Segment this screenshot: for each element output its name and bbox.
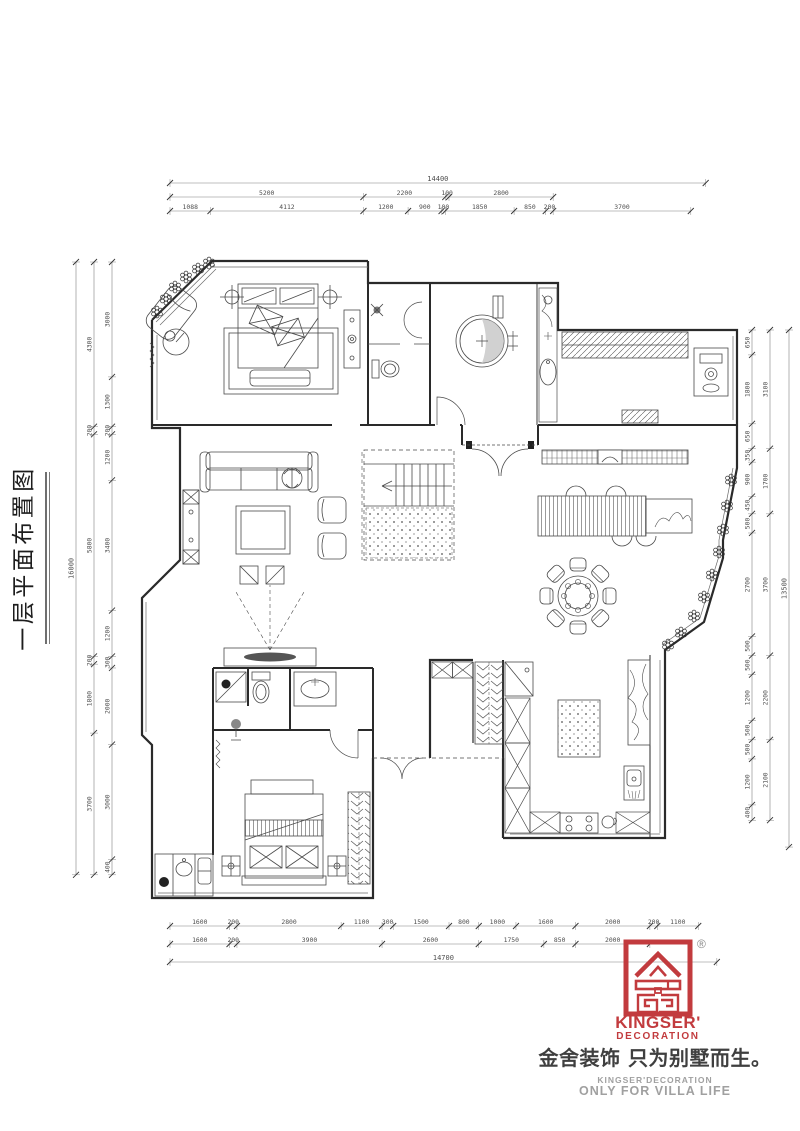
dim-chain: 31001700370022002100 [762, 327, 774, 823]
dim-label: 1100 [354, 918, 370, 926]
dining-chair [589, 588, 616, 604]
dim-label: 2200 [397, 189, 413, 197]
dim-label: 2000 [605, 936, 621, 944]
logo-brand-line2: DECORATION [616, 1031, 699, 1042]
toilet-room [368, 302, 430, 378]
dining-console [538, 486, 692, 546]
bedroom-rug [224, 328, 338, 394]
dim-label: 2800 [281, 918, 297, 926]
dim-label: 2600 [423, 936, 439, 944]
dim-label: 4300 [86, 336, 94, 352]
dim-label: 200 [544, 203, 556, 211]
kitchenette [155, 854, 213, 896]
dim-label: 3900 [302, 936, 318, 944]
dim-label: 650 [744, 337, 752, 349]
dim-chain: 14400 [167, 175, 709, 187]
dim-label: 1600 [192, 918, 208, 926]
shoe-cabinet [542, 450, 688, 464]
dim-label: 5200 [259, 189, 275, 197]
flower-icon [181, 271, 192, 283]
dim-label: 1000 [490, 918, 506, 926]
dim-label: 1750 [504, 936, 520, 944]
dim-label: 850 [524, 203, 536, 211]
dim-label: 850 [554, 936, 566, 944]
dining-chair [570, 558, 586, 585]
poufs [240, 566, 284, 584]
dim-label: 3700 [86, 796, 94, 812]
dim-label: 3400 [104, 538, 112, 554]
dim-chain: 520022001002800 [167, 189, 556, 201]
dim-label: 16000 [68, 558, 76, 579]
entry-double-door [462, 441, 538, 476]
dim-label: 1200 [378, 203, 394, 211]
windows [146, 265, 733, 893]
round-dining-table [540, 558, 616, 634]
dim-chain: 16002003900260017508502000 [167, 936, 653, 948]
dim-label: 14400 [427, 175, 448, 183]
dim-label: 1600 [192, 936, 208, 944]
dim-label: 1500 [413, 918, 429, 926]
logo-glyph-icon [636, 954, 680, 1012]
dim-label: 800 [458, 918, 470, 926]
flower-icon [699, 591, 710, 603]
dim-chain: 6501800650350900450500270050050012005005… [744, 327, 756, 823]
dim-label: 14700 [433, 954, 454, 962]
dim-label: 500 [744, 724, 752, 736]
dim-chain: 13500 [781, 327, 793, 850]
kitchen-sink [624, 766, 644, 800]
logo-tagline-cn: 金舍装饰 只为别墅而生。 [538, 1046, 772, 1070]
dim-label: 1850 [472, 203, 488, 211]
bed-bench [250, 370, 310, 386]
dim-label: 200 [227, 936, 239, 944]
radiator [622, 410, 658, 423]
dim-label: 2000 [605, 918, 621, 926]
flower-icon [722, 500, 733, 512]
dim-label: 200 [648, 918, 660, 926]
counter-cells [432, 662, 650, 833]
tall-cabinet [628, 660, 650, 745]
flower-icon [689, 610, 700, 622]
dim-label: 650 [744, 430, 752, 442]
dim-label: 400 [744, 807, 752, 819]
tv-cabinet [183, 490, 199, 564]
dim-label: 1800 [86, 691, 94, 707]
bath-vanity [539, 288, 557, 422]
dim-label: 2700 [744, 577, 752, 593]
plant [282, 468, 302, 488]
round-bathtub [437, 296, 518, 425]
cased-openings [373, 758, 503, 779]
dim-chain: 10884112120090010018508502003700 [167, 203, 694, 215]
dim-label: 2100 [762, 772, 770, 788]
dim-label: 500 [744, 659, 752, 671]
dresser [344, 310, 360, 368]
flower-icon [161, 293, 172, 305]
dim-label: 2800 [493, 189, 509, 197]
dining-chair [570, 607, 586, 634]
dim-label: 1088 [183, 203, 199, 211]
flower-icon [676, 627, 687, 639]
floorplan-canvas: 1440052002200100280010884112120090010018… [0, 0, 800, 1131]
dim-label: 5800 [86, 538, 94, 554]
dim-label: 1600 [538, 918, 554, 926]
dim-label: 1300 [104, 394, 112, 410]
vanity-2 [294, 672, 336, 706]
dim-label: 900 [419, 203, 431, 211]
logo-brand-line1: KINGSER' [615, 1013, 701, 1032]
bed-2 [242, 780, 326, 885]
stove [560, 813, 598, 833]
kettle [602, 816, 617, 828]
dim-label: 3000 [104, 794, 112, 810]
registered-mark: ® [697, 937, 706, 951]
dim-label: 1200 [104, 449, 112, 465]
dim-label: 300 [382, 918, 394, 926]
dim-label: 3100 [762, 382, 770, 398]
dim-label: 900 [744, 473, 752, 485]
dim-chain: 1600200280011003001500800100016002000200… [167, 918, 701, 930]
drawing-title-block: 一层平面布置图 [11, 465, 50, 651]
dim-label: 3700 [762, 577, 770, 593]
dim-label: 3700 [614, 203, 630, 211]
dim-label: 300 [104, 656, 112, 668]
coffee-table [236, 506, 290, 554]
corridor-closet [562, 332, 688, 358]
kitchen [475, 660, 650, 833]
dim-label: 200 [227, 918, 239, 926]
dim-label: 100 [441, 189, 453, 197]
dim-label: 350 [744, 450, 752, 462]
drawing-title: 一层平面布置图 [11, 465, 37, 651]
dim-label: 1100 [670, 918, 686, 926]
dim-chain: 14700 [167, 954, 720, 966]
flower-icon [170, 281, 181, 293]
dim-label: 1200 [744, 690, 752, 706]
dim-label: 500 [744, 640, 752, 652]
dim-label: 13500 [781, 578, 789, 599]
dim-label: 500 [744, 743, 752, 755]
dim-label: 100 [438, 203, 450, 211]
shower-stall [216, 672, 246, 702]
flower-icon [193, 263, 204, 275]
door-arc-bath2 [330, 730, 358, 758]
dim-label: 1700 [762, 473, 770, 489]
kingser-logo: ® KINGSER' DECORATION 金舍装饰 只为别墅而生。 KINGS… [538, 937, 772, 1098]
bed-master [238, 284, 318, 368]
kitchen-island [558, 700, 600, 757]
logo-sub-tagline: ONLY FOR VILLA LIFE [579, 1084, 731, 1098]
dim-chain: 3000130020012003400120030020003000400 [104, 259, 116, 878]
curtain-zigzag-2 [216, 740, 220, 768]
dim-chain: 4300200580020018003700 [86, 259, 98, 878]
wardrobe [348, 792, 370, 884]
dim-label: 2000 [104, 698, 112, 714]
dining-chair [540, 588, 567, 604]
corridor-cabinet [694, 348, 728, 396]
flower-icon [718, 524, 729, 536]
stairs [362, 450, 454, 560]
dim-label: 1200 [104, 626, 112, 642]
dim-chain: 16000 [68, 259, 80, 878]
dim-label: 400 [104, 861, 112, 873]
dim-label: 1200 [744, 774, 752, 790]
armchairs [318, 497, 346, 559]
nightstands [222, 856, 346, 876]
dim-label: 1800 [744, 382, 752, 398]
dim-label: 4112 [279, 203, 295, 211]
dim-label: 3000 [104, 312, 112, 328]
toilet-2 [252, 672, 270, 703]
tv-console [224, 585, 316, 666]
furniture [143, 283, 728, 896]
dim-label: 500 [744, 517, 752, 529]
dim-label: 2200 [762, 690, 770, 706]
dim-label: 450 [744, 499, 752, 511]
